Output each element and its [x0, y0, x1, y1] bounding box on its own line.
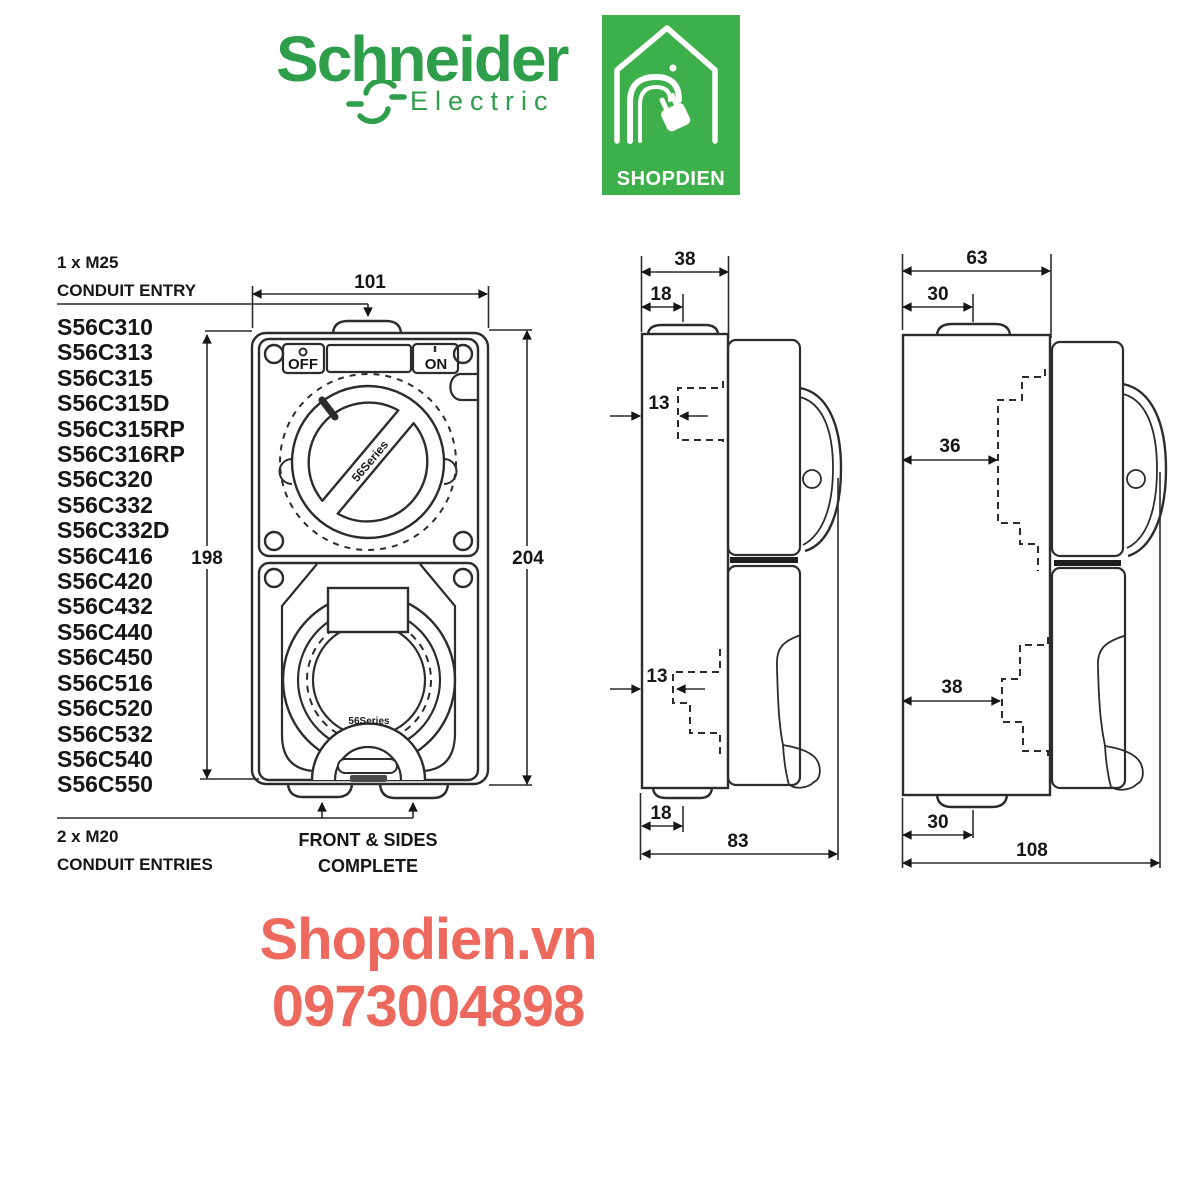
model-item: S56C550: [57, 772, 185, 797]
off-symbol-icon: [300, 349, 307, 356]
schneider-wordmark: Schneider: [276, 22, 567, 96]
dim-top-width: 38: [674, 249, 695, 270]
switch-position-mark: [322, 400, 335, 417]
shopdien-logo-label: SHOPDIEN: [617, 168, 725, 190]
side-view-large: [903, 324, 1166, 807]
dim-lower-knockout: 13: [646, 666, 667, 687]
screw-icon: [454, 532, 472, 550]
website-text: Shopdien.vn: [128, 906, 728, 973]
phone-text: 0973004898: [128, 973, 728, 1040]
bottom-conduit-cap: [653, 788, 712, 798]
schneider-electric-label: Electric: [410, 86, 555, 117]
socket-module-profile: [728, 566, 800, 785]
shopdien-logo: SHOPDIEN: [602, 15, 740, 195]
model-item: S56C416: [57, 544, 185, 569]
switch-lug-right: [444, 459, 457, 484]
dim-width: 101: [354, 272, 386, 293]
flap-profile: [777, 635, 801, 785]
model-item: S56C313: [57, 340, 185, 365]
top-entry-note-line1: 1 x M25: [57, 253, 118, 273]
front-caption-line2: COMPLETE: [318, 856, 418, 876]
dim-overall-height: 204: [512, 548, 544, 569]
screw-icon: [265, 345, 283, 363]
model-list: S56C310 S56C313 S56C315 S56C315D S56C315…: [57, 315, 185, 798]
switch-module-profile: [728, 340, 800, 555]
upper-knockout-dashed: [998, 369, 1045, 571]
model-item: S56C316RP: [57, 442, 185, 467]
flap-lip: [338, 759, 397, 773]
dim-bottom-entry: 30: [927, 812, 948, 833]
series-mark-socket: 56Series: [348, 716, 390, 727]
dim-top-entry: 18: [650, 284, 671, 305]
screw-icon: [265, 532, 283, 550]
socket-module-profile: [1052, 568, 1125, 788]
screw-icon: [265, 569, 283, 587]
corner-tab: [450, 374, 478, 400]
dim-top-width: 63: [966, 248, 987, 269]
model-item: S56C420: [57, 569, 185, 594]
dim-bottom-entry: 18: [650, 803, 671, 824]
model-item: S56C320: [57, 467, 185, 492]
model-item: S56C440: [57, 620, 185, 645]
off-label: OFF: [288, 356, 318, 373]
flap-lip-shadow: [350, 775, 387, 782]
dim-depth: 83: [727, 831, 748, 852]
model-item: S56C310: [57, 315, 185, 340]
bottom-conduit-cap-left: [288, 784, 352, 797]
top-entry-note-line2: CONDUIT ENTRY: [57, 281, 196, 301]
lower-knockout-dashed: [673, 649, 720, 756]
bottom-entries-note-line1: 2 x M20: [57, 827, 118, 847]
top-conduit-cap: [937, 324, 1010, 335]
model-item: S56C540: [57, 747, 185, 772]
footer-contact: Shopdien.vn 0973004898: [128, 906, 728, 1040]
model-item: S56C432: [57, 594, 185, 619]
label-window: [327, 345, 411, 372]
screw-icon: [454, 345, 472, 363]
top-conduit-cap: [648, 325, 718, 334]
model-item: S56C315RP: [57, 417, 185, 442]
bottom-entries-note-line2: CONDUIT ENTRIES: [57, 855, 213, 875]
dim-lower-knockout: 38: [941, 677, 962, 698]
bottom-conduit-cap-right: [380, 784, 448, 798]
dim-upper-knockout: 36: [939, 436, 960, 457]
side-view-small: [642, 325, 841, 798]
screw-icon: [454, 569, 472, 587]
flap-hinge-cover: [328, 588, 408, 632]
on-label: ON: [425, 356, 448, 373]
front-caption-line1: FRONT & SIDES: [298, 830, 437, 850]
top-conduit-cap: [333, 321, 401, 333]
dim-top-entry: 30: [927, 284, 948, 305]
model-item: S56C532: [57, 722, 185, 747]
dim-depth: 108: [1016, 840, 1048, 861]
flap-profile: [1098, 636, 1124, 787]
knob-grip: [1127, 470, 1145, 488]
model-item: S56C520: [57, 696, 185, 721]
switch-module-profile: [1052, 342, 1123, 556]
knob-grip: [803, 470, 821, 488]
datasheet-page: Schneider Electric SHOPDIEN 1 x M25 COND…: [0, 0, 1200, 1200]
dim-upper-knockout: 13: [648, 393, 669, 414]
lower-knockout-dashed: [1002, 637, 1048, 758]
schneider-swirl-icon: [344, 80, 408, 126]
model-item: S56C332D: [57, 518, 185, 543]
model-item: S56C450: [57, 645, 185, 670]
upper-knockout-dashed: [678, 381, 723, 447]
side-view-small-dimensions: [610, 256, 838, 860]
dim-face-height: 198: [191, 548, 223, 569]
bottom-conduit-cap: [937, 795, 1007, 807]
house-dot: [670, 65, 677, 72]
model-item: S56C516: [57, 671, 185, 696]
mounting-block: [903, 335, 1050, 795]
model-item: S56C315: [57, 366, 185, 391]
model-item: S56C315D: [57, 391, 185, 416]
model-item: S56C332: [57, 493, 185, 518]
